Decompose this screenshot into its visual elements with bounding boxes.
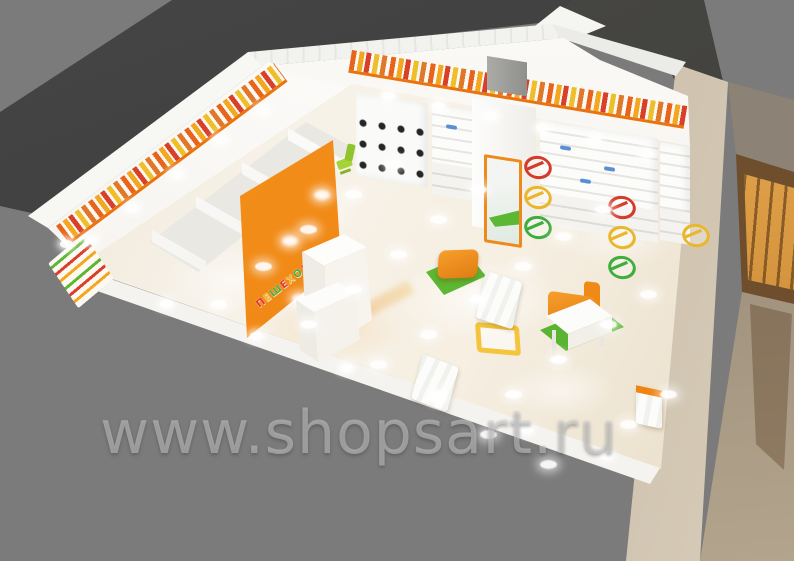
shoe-item [604, 166, 615, 172]
traffic-ring [679, 222, 712, 249]
spotlight-glint [126, 204, 139, 212]
spotlight-glint [282, 236, 298, 246]
spotlight-glint [536, 124, 549, 132]
traffic-ring [605, 224, 638, 251]
shoe-item [560, 145, 571, 151]
floor-light-reflection [420, 330, 437, 339]
traffic-ring [521, 184, 554, 211]
floor-light-reflection [345, 285, 362, 294]
spotlight-glint [432, 102, 445, 110]
floor-light-reflection [640, 290, 657, 299]
floor-light-reflection [300, 225, 317, 234]
traffic-ring-stack [524, 154, 552, 241]
spotlight-glint [640, 150, 653, 158]
try-on-bench [475, 322, 521, 356]
spotlight-glint [250, 332, 263, 340]
floor-light-reflection [300, 320, 317, 329]
floor-light-reflection [660, 390, 677, 399]
floor-light-reflection [255, 262, 272, 271]
spotlight-glint [314, 190, 330, 200]
spotlight-glint [588, 136, 601, 144]
traffic-ring [521, 214, 554, 241]
spotlight-glint [160, 300, 173, 308]
spotlight-glint [382, 92, 395, 100]
spotlight-glint [60, 240, 73, 248]
spotlight-glint [214, 136, 227, 144]
floor-light-reflection [515, 262, 532, 271]
floor-light-reflection [390, 250, 407, 259]
traffic-ring-stack [608, 194, 636, 281]
shoe-item [580, 178, 591, 184]
fitting-mirror [484, 154, 522, 248]
spotlight-glint [340, 364, 353, 372]
floor-light-reflection [430, 215, 447, 224]
floor-light-reflection [550, 355, 567, 364]
traffic-ring [605, 254, 638, 281]
slatwall-shoe-display [356, 92, 428, 187]
table-leg [552, 330, 556, 358]
watermark: www.shopsart.ru [100, 398, 618, 468]
spotlight-glint [84, 236, 97, 244]
floor-light-reflection [345, 190, 362, 199]
traffic-ring [521, 154, 554, 181]
floor-light-reflection [370, 360, 387, 369]
floor-light-reflection [470, 295, 487, 304]
spotlight-glint [170, 170, 183, 178]
traffic-ring-single [682, 222, 710, 249]
floor-light-reflection [595, 205, 612, 214]
floor-light-reflection [600, 320, 617, 329]
wall-column [487, 56, 527, 96]
floor-light-reflection [210, 300, 227, 309]
floor-light-reflection [470, 185, 487, 194]
fitting-pouf [437, 249, 479, 279]
spotlight-glint [484, 112, 497, 120]
spotlight-glint [256, 106, 269, 114]
floor-light-reflection [385, 160, 402, 169]
mirror-rug-reflection [489, 206, 519, 231]
floor-light-reflection [620, 420, 637, 429]
shoe-display-stand [636, 385, 662, 429]
shoe-item [446, 124, 457, 130]
store-render: ПЕШЕХОДИКИ www.shopsart.ru [0, 0, 794, 561]
floor-light-reflection [555, 232, 572, 241]
